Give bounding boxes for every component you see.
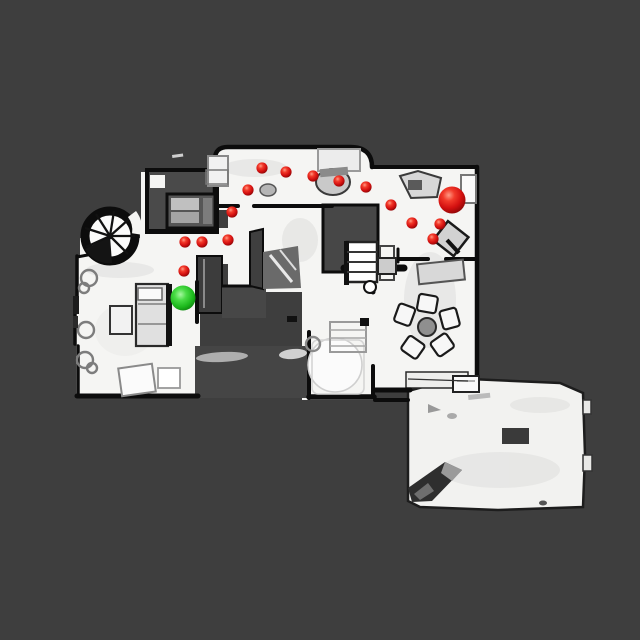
waypoint-marker [385, 199, 396, 210]
spiral-staircase [85, 211, 137, 263]
waypoint-marker [280, 166, 291, 177]
agent-sphere-marker [439, 187, 466, 214]
waypoint-marker [179, 236, 190, 247]
floorplan-canvas [0, 0, 640, 640]
waypoint-marker [333, 175, 344, 186]
waypoint-marker [226, 206, 237, 217]
map-viewport [0, 0, 640, 640]
waypoint-marker [360, 181, 371, 192]
goal-sphere-marker [171, 286, 196, 311]
waypoint-marker [427, 233, 438, 244]
waypoint-marker [307, 170, 318, 181]
waypoint-marker [222, 234, 233, 245]
bed-upper-left [167, 194, 215, 228]
waypoint-marker [178, 265, 189, 276]
waypoint-marker [434, 218, 445, 229]
waypoint-marker [256, 162, 267, 173]
waypoint-marker [196, 236, 207, 247]
waypoint-marker [242, 184, 253, 195]
waypoint-marker [406, 217, 417, 228]
